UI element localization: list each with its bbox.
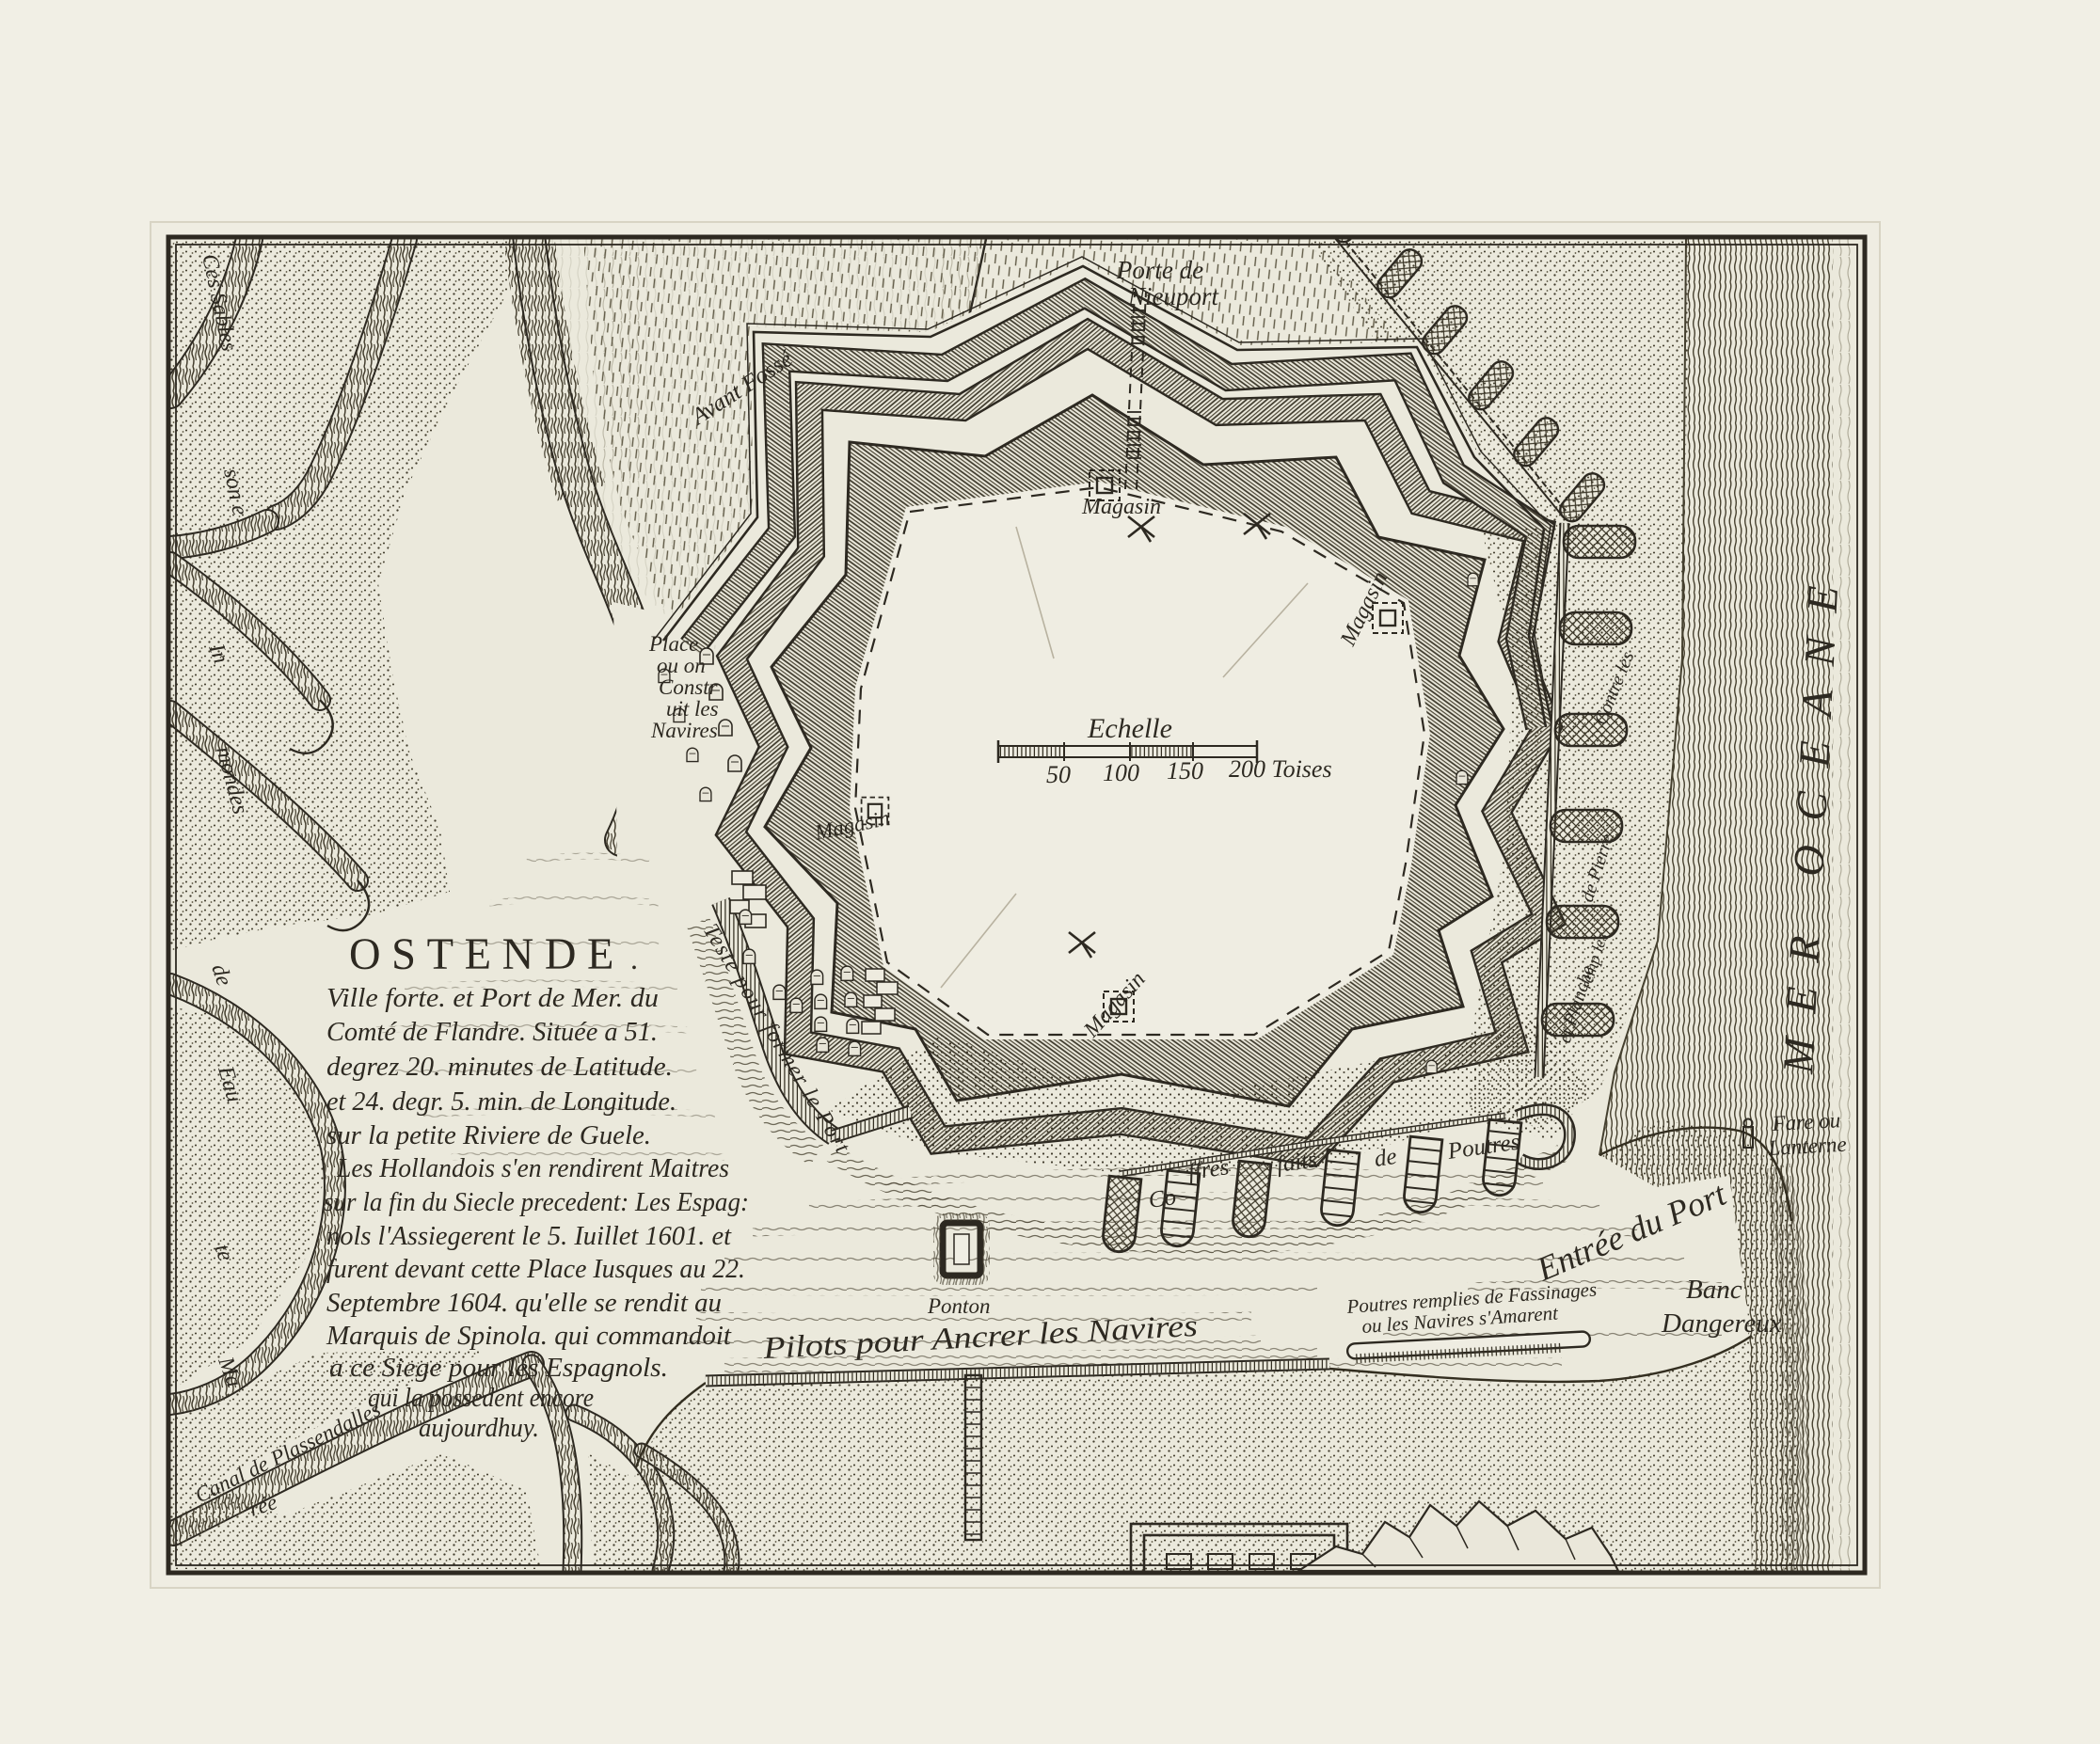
svg-text:aujourdhuy.: aujourdhuy. bbox=[419, 1414, 539, 1443]
svg-text:Echelle: Echelle bbox=[1087, 713, 1172, 744]
svg-text:Lanterne: Lanterne bbox=[1767, 1133, 1847, 1160]
svg-text:Place: Place bbox=[648, 632, 698, 656]
svg-text:Les Hollandois s'en rendirent: Les Hollandois s'en rendirent Maitres bbox=[336, 1154, 729, 1183]
svg-text:50: 50 bbox=[1046, 761, 1071, 788]
svg-text:Co: Co bbox=[1147, 1184, 1178, 1213]
svg-text:Comté de Flandre. Située a 51.: Comté de Flandre. Située a 51. bbox=[326, 1018, 658, 1047]
svg-text:100: 100 bbox=[1103, 759, 1139, 786]
svg-text:150: 150 bbox=[1167, 757, 1203, 785]
svg-text:Constr: Constr bbox=[659, 675, 719, 699]
svg-text:nols l'Assiegerent le 5. Iuill: nols l'Assiegerent le 5. Iuillet 1601. e… bbox=[326, 1222, 732, 1251]
svg-text:Dangereux: Dangereux bbox=[1661, 1308, 1782, 1339]
svg-text:Marquis de Spinola. qui comman: Marquis de Spinola. qui commandoit bbox=[326, 1322, 732, 1351]
svg-text:uit les: uit les bbox=[666, 697, 719, 721]
svg-text:sur la petite Riviere de Guele: sur la petite Riviere de Guele. bbox=[326, 1121, 651, 1150]
svg-text:Navires: Navires bbox=[650, 719, 718, 742]
svg-text:qui la possedent encore: qui la possedent encore bbox=[368, 1384, 594, 1413]
svg-text:Ponton: Ponton bbox=[927, 1294, 990, 1318]
svg-text:Porte de: Porte de bbox=[1116, 256, 1203, 284]
svg-text:Banc: Banc bbox=[1686, 1275, 1742, 1305]
svg-text:furent devant cette Place Iusq: furent devant cette Place Iusques au 22. bbox=[326, 1255, 745, 1284]
svg-text:Fare ou: Fare ou bbox=[1771, 1108, 1841, 1135]
svg-text:de: de bbox=[1373, 1144, 1398, 1172]
svg-text:a ce Siege pour les Espagnols.: a ce Siege pour les Espagnols. bbox=[329, 1354, 668, 1383]
svg-text:200 Toises: 200 Toises bbox=[1229, 755, 1332, 783]
svg-text:et 24. degr. 5. min. de Longit: et 24. degr. 5. min. de Longitude. bbox=[326, 1087, 676, 1117]
svg-text:Septembre 1604. qu'elle se ren: Septembre 1604. qu'elle se rendit au bbox=[326, 1289, 722, 1318]
svg-text:Ville forte. et Port de Mer. d: Ville forte. et Port de Mer. du bbox=[326, 984, 659, 1013]
svg-text:degrez 20. minutes de Latitude: degrez 20. minutes de Latitude. bbox=[326, 1053, 673, 1082]
svg-text:ou on: ou on bbox=[657, 654, 706, 677]
svg-text:sur la fin du Siecle precedent: sur la fin du Siecle precedent: Les Espa… bbox=[324, 1188, 749, 1217]
svg-text:OSTENDE: OSTENDE bbox=[349, 929, 625, 979]
svg-text:Nieuport: Nieuport bbox=[1127, 282, 1220, 310]
svg-text:Magasin: Magasin bbox=[1081, 495, 1161, 519]
svg-text:.: . bbox=[630, 942, 638, 975]
